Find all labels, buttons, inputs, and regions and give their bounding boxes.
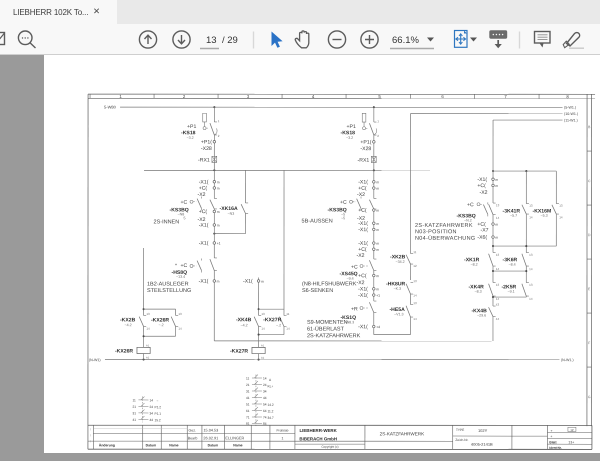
svg-text:~K.3: ~K.3 bbox=[393, 287, 401, 291]
svg-text:74: 74 bbox=[263, 415, 267, 419]
svg-text:-X1(: -X1( bbox=[199, 179, 209, 185]
svg-text:m: m bbox=[495, 184, 498, 188]
svg-text:66.1%: 66.1% bbox=[392, 35, 419, 46]
svg-text:-X6(: -X6( bbox=[477, 235, 487, 241]
svg-text:B: B bbox=[588, 125, 591, 129]
svg-text:-X1(: -X1( bbox=[358, 287, 368, 293]
svg-text:5B-AUSSEN: 5B-AUSSEN bbox=[302, 218, 333, 224]
svg-text:~N3: ~N3 bbox=[228, 212, 235, 216]
svg-text:+C: +C bbox=[340, 200, 347, 206]
svg-text:S6-SENKEN: S6-SENKEN bbox=[302, 288, 333, 294]
svg-text:13: 13 bbox=[496, 203, 500, 207]
svg-text:102Y: 102Y bbox=[478, 428, 488, 433]
svg-text:~9.4: ~9.4 bbox=[346, 277, 353, 281]
svg-text:13: 13 bbox=[496, 253, 500, 257]
svg-text:C: C bbox=[588, 179, 591, 183]
svg-text:Blatt: Blatt bbox=[549, 440, 557, 444]
svg-text:31: 31 bbox=[132, 411, 136, 415]
svg-text:E: E bbox=[588, 287, 591, 291]
svg-text:+C: +C bbox=[180, 263, 187, 269]
svg-text:13: 13 bbox=[529, 204, 533, 208]
svg-text:ELLINGER: ELLINGER bbox=[225, 436, 244, 440]
svg-text:~V1.3: ~V1.3 bbox=[394, 312, 404, 316]
svg-text:13: 13 bbox=[529, 253, 533, 257]
svg-text:31: 31 bbox=[246, 389, 250, 393]
svg-text:13: 13 bbox=[529, 283, 533, 287]
svg-text:m: m bbox=[217, 187, 220, 191]
svg-text:~34.2: ~34.2 bbox=[395, 260, 404, 264]
svg-text:14: 14 bbox=[496, 297, 500, 301]
svg-text:Ident-Nr.: Ident-Nr. bbox=[549, 446, 561, 450]
svg-text:+C: +C bbox=[351, 265, 358, 271]
svg-text:61-ÜBERLAST: 61-ÜBERLAST bbox=[307, 325, 345, 332]
svg-text:-X1(: -X1( bbox=[358, 180, 368, 186]
svg-text:A: A bbox=[269, 378, 272, 382]
svg-text:21: 21 bbox=[132, 405, 136, 409]
svg-text:11: 11 bbox=[246, 376, 250, 380]
svg-text:*: * bbox=[175, 263, 177, 269]
svg-text:11.2: 11.2 bbox=[267, 409, 273, 413]
svg-text:-X1(: -X1( bbox=[243, 279, 253, 285]
svg-text:m: m bbox=[217, 210, 220, 214]
svg-text:+C: +C bbox=[467, 202, 474, 208]
svg-text:13: 13 bbox=[261, 312, 265, 316]
svg-text:-X1(: -X1( bbox=[358, 293, 368, 299]
svg-text:24: 24 bbox=[263, 383, 267, 387]
svg-text:26.02.91: 26.02.91 bbox=[203, 436, 218, 440]
svg-text:(11-W1.): (11-W1.) bbox=[564, 118, 578, 122]
svg-text:Copyright (c): Copyright (c) bbox=[321, 445, 338, 449]
svg-text:14: 14 bbox=[263, 376, 267, 380]
svg-text:Datum: Datum bbox=[146, 443, 157, 447]
svg-text:m: m bbox=[495, 178, 498, 182]
svg-text:-X28: -X28 bbox=[360, 146, 371, 152]
svg-text:-X28: -X28 bbox=[201, 146, 212, 152]
svg-text:+R: +R bbox=[351, 307, 358, 313]
svg-text:13: 13 bbox=[413, 301, 417, 305]
svg-text:m: m bbox=[261, 280, 264, 284]
svg-text:34.7: 34.7 bbox=[267, 416, 273, 420]
svg-text:14: 14 bbox=[146, 327, 150, 331]
svg-text:-X7: -X7 bbox=[481, 228, 489, 234]
svg-text:15.04.53: 15.04.53 bbox=[203, 429, 218, 433]
svg-text:-X1(: -X1( bbox=[358, 227, 368, 233]
svg-text:~4.2: ~4.2 bbox=[240, 323, 247, 327]
svg-text:~29.6: ~29.6 bbox=[477, 314, 486, 318]
svg-text:~4.2: ~4.2 bbox=[124, 323, 131, 327]
svg-text:13: 13 bbox=[413, 279, 417, 283]
svg-text:+1: +1 bbox=[376, 294, 380, 298]
svg-text:+C(: +C( bbox=[477, 183, 486, 189]
svg-text:S9-MOMENTEN: S9-MOMENTEN bbox=[307, 320, 348, 326]
svg-text:Datum: Datum bbox=[208, 443, 219, 447]
svg-text:~8.3: ~8.3 bbox=[474, 290, 481, 294]
svg-text:m: m bbox=[376, 222, 379, 226]
svg-text:Name: Name bbox=[233, 443, 242, 447]
svg-text:14: 14 bbox=[261, 327, 265, 331]
svg-text:34: 34 bbox=[149, 411, 153, 415]
svg-text:(N8-HILFSHUBWERK: (N8-HILFSHUBWERK bbox=[302, 281, 357, 287]
svg-text:14: 14 bbox=[529, 215, 533, 219]
svg-text:51: 51 bbox=[246, 402, 250, 406]
svg-text:|: | bbox=[90, 428, 91, 431]
svg-text:Bearb: Bearb bbox=[188, 436, 198, 440]
svg-text:P1.2: P1.2 bbox=[154, 405, 161, 409]
svg-text:13: 13 bbox=[178, 312, 182, 316]
svg-text:m: m bbox=[376, 228, 379, 232]
svg-text:D: D bbox=[588, 233, 591, 237]
svg-text:-X1(: -X1( bbox=[199, 241, 209, 247]
svg-text:m: m bbox=[376, 187, 379, 191]
svg-text:14.2: 14.2 bbox=[267, 403, 273, 407]
svg-text:~3.2: ~3.2 bbox=[187, 136, 194, 140]
svg-text:Änderung: Änderung bbox=[99, 443, 115, 447]
svg-text:m: m bbox=[376, 248, 379, 252]
svg-text:~5.7: ~5.7 bbox=[510, 214, 517, 218]
svg-text:71: 71 bbox=[246, 415, 250, 419]
svg-text:-RX1: -RX1 bbox=[198, 158, 210, 164]
svg-text:1: 1 bbox=[281, 436, 283, 440]
svg-text:61: 61 bbox=[246, 409, 250, 413]
svg-text:12: 12 bbox=[413, 264, 417, 268]
svg-text:15.2: 15.2 bbox=[154, 418, 160, 422]
svg-text:m: m bbox=[495, 236, 498, 240]
svg-text:~N.2: ~N.2 bbox=[464, 218, 472, 222]
svg-text:-KX27R: -KX27R bbox=[263, 317, 281, 323]
svg-text:~3.2: ~3.2 bbox=[346, 136, 353, 140]
svg-text:+C(: +C( bbox=[358, 273, 367, 279]
svg-text:+C(: +C( bbox=[358, 208, 367, 214]
svg-text:m: m bbox=[376, 287, 379, 291]
svg-text:41: 41 bbox=[246, 396, 250, 400]
svg-text:+C: +C bbox=[181, 200, 188, 206]
svg-text:m: m bbox=[217, 280, 220, 284]
svg-text:A1: A1 bbox=[146, 343, 150, 347]
svg-text:13: 13 bbox=[146, 312, 150, 316]
svg-text:m: m bbox=[376, 209, 379, 213]
svg-text:m: m bbox=[376, 180, 379, 184]
svg-text:13: 13 bbox=[496, 283, 500, 287]
svg-text:13: 13 bbox=[559, 204, 563, 208]
svg-text:14: 14 bbox=[559, 215, 563, 219]
svg-text:21: 21 bbox=[246, 383, 250, 387]
svg-text:A2: A2 bbox=[261, 356, 265, 360]
svg-text:+C(: +C( bbox=[199, 186, 208, 192]
svg-text:(10-W1.): (10-W1.) bbox=[564, 112, 578, 116]
svg-text:Prüfstab: Prüfstab bbox=[277, 428, 289, 432]
svg-text:m: m bbox=[376, 242, 379, 246]
svg-text:-X1(: -X1( bbox=[199, 223, 209, 229]
svg-text:14: 14 bbox=[413, 294, 417, 298]
svg-text:(N-W1.): (N-W1.) bbox=[561, 358, 574, 362]
svg-text:44: 44 bbox=[149, 418, 153, 422]
svg-text:~9.1: ~9.1 bbox=[507, 290, 514, 294]
svg-text:-XK4B: -XK4B bbox=[236, 317, 252, 323]
svg-text:+P1(: +P1( bbox=[360, 140, 371, 146]
svg-text:(5-W1.): (5-W1.) bbox=[564, 106, 576, 110]
svg-text:G: G bbox=[588, 395, 591, 399]
svg-text:~13.4: ~13.4 bbox=[176, 275, 185, 279]
svg-text:+: + bbox=[550, 434, 552, 438]
svg-text:+P1(: +P1( bbox=[201, 140, 212, 146]
svg-text:14: 14 bbox=[496, 267, 500, 271]
svg-text:13: 13 bbox=[206, 35, 217, 46]
svg-text:-X1(: -X1( bbox=[199, 279, 209, 285]
svg-text:5-W80: 5-W80 bbox=[104, 105, 117, 110]
svg-text:Gez.: Gez. bbox=[188, 429, 196, 433]
svg-text:BIBERACH GmbH: BIBERACH GmbH bbox=[299, 436, 337, 441]
svg-text:1: 1 bbox=[377, 119, 379, 123]
svg-text:54: 54 bbox=[263, 402, 267, 406]
svg-text:+1: +1 bbox=[217, 242, 221, 246]
svg-text:43: 43 bbox=[496, 303, 500, 307]
svg-text:11: 11 bbox=[286, 312, 289, 316]
svg-text:-KX27R: -KX27R bbox=[230, 349, 248, 355]
svg-text:Zeich-Nr.: Zeich-Nr. bbox=[455, 438, 468, 442]
svg-text:~5: ~5 bbox=[341, 216, 345, 220]
svg-text:4005-2141B: 4005-2141B bbox=[471, 442, 493, 447]
svg-text:13+: 13+ bbox=[568, 440, 574, 444]
svg-text:A2: A2 bbox=[146, 356, 150, 360]
svg-text:44: 44 bbox=[263, 396, 267, 400]
svg-text:N04-ÜBERWACHUNG: N04-ÜBERWACHUNG bbox=[415, 235, 475, 242]
svg-text:+C(: +C( bbox=[199, 209, 208, 215]
svg-text:-X1(: -X1( bbox=[477, 177, 487, 183]
svg-text:2S-KATZFAHRWERK: 2S-KATZFAHRWERK bbox=[415, 223, 473, 229]
svg-text:14: 14 bbox=[286, 327, 290, 331]
svg-text:~.2: ~.2 bbox=[158, 323, 163, 327]
svg-text:F: F bbox=[588, 341, 590, 345]
svg-text:STEILSTELLUNG: STEILSTELLUNG bbox=[147, 288, 191, 294]
svg-text:64: 64 bbox=[263, 409, 267, 413]
svg-text:KL+: KL+ bbox=[267, 384, 273, 388]
svg-text:1B2-AUSLEGER: 1B2-AUSLEGER bbox=[147, 281, 189, 287]
svg-text:11: 11 bbox=[132, 398, 136, 402]
svg-text:14: 14 bbox=[178, 327, 182, 331]
svg-text:-X2: -X2 bbox=[356, 280, 364, 286]
svg-text:LIEBHERR-WERK: LIEBHERR-WERK bbox=[299, 428, 337, 433]
svg-text:+P1: +P1 bbox=[187, 124, 196, 130]
svg-text:14: 14 bbox=[529, 297, 533, 301]
svg-text:12: 12 bbox=[570, 428, 574, 432]
svg-text:+4: +4 bbox=[376, 325, 380, 329]
svg-text:41: 41 bbox=[132, 418, 136, 422]
svg-text:P1.1: P1.1 bbox=[154, 412, 161, 416]
svg-text:2: 2 bbox=[218, 134, 220, 138]
svg-text:1: 1 bbox=[218, 119, 220, 123]
svg-text:+P1: +P1 bbox=[347, 124, 356, 130]
svg-text:~: ~ bbox=[156, 399, 158, 403]
svg-text:m: m bbox=[495, 223, 498, 227]
svg-text:m: m bbox=[376, 274, 379, 278]
svg-text:+C(: +C( bbox=[358, 186, 367, 192]
svg-text:~.2: ~.2 bbox=[276, 323, 281, 327]
svg-text:-X1(: -X1( bbox=[358, 241, 368, 247]
svg-text:A1: A1 bbox=[261, 343, 265, 347]
svg-text:14: 14 bbox=[496, 216, 500, 220]
svg-text:14: 14 bbox=[529, 267, 533, 271]
svg-text:m: m bbox=[217, 224, 220, 228]
svg-text:/ 29: / 29 bbox=[222, 35, 238, 46]
svg-text:-X1(: -X1( bbox=[358, 324, 368, 330]
svg-text:2S-KATZFAHRWERK: 2S-KATZFAHRWERK bbox=[380, 431, 425, 436]
svg-text:~8.2: ~8.2 bbox=[470, 263, 477, 267]
svg-text:2: 2 bbox=[377, 134, 379, 138]
svg-text:~5.3: ~5.3 bbox=[541, 214, 548, 218]
svg-text:m: m bbox=[217, 180, 220, 184]
svg-text:5: 5 bbox=[184, 216, 186, 220]
svg-text:+: + bbox=[550, 429, 552, 433]
svg-text:2S-INNEN: 2S-INNEN bbox=[154, 219, 180, 225]
svg-text:2S-KATZFAHRWERK: 2S-KATZFAHRWERK bbox=[307, 333, 361, 339]
svg-text:34: 34 bbox=[263, 389, 267, 393]
svg-text:-RX1: -RX1 bbox=[358, 158, 370, 164]
svg-text:|: | bbox=[90, 434, 91, 437]
svg-text:Name: Name bbox=[169, 443, 178, 447]
svg-text:-X1(: -X1( bbox=[358, 221, 368, 227]
svg-text:44: 44 bbox=[496, 317, 500, 321]
svg-text:14: 14 bbox=[413, 317, 417, 321]
svg-text:-KX26R: -KX26R bbox=[115, 349, 133, 355]
svg-text:11: 11 bbox=[413, 250, 416, 254]
svg-text:24: 24 bbox=[149, 405, 153, 409]
svg-text:(N-W1): (N-W1) bbox=[89, 358, 101, 362]
svg-text:-X2: -X2 bbox=[356, 253, 364, 259]
svg-text:-X2: -X2 bbox=[480, 190, 488, 196]
svg-text:14: 14 bbox=[149, 398, 153, 402]
svg-text:~8.4: ~8.4 bbox=[508, 263, 515, 267]
svg-text:TYPE: TYPE bbox=[456, 428, 464, 432]
svg-text:N03-POSITION: N03-POSITION bbox=[415, 229, 457, 235]
